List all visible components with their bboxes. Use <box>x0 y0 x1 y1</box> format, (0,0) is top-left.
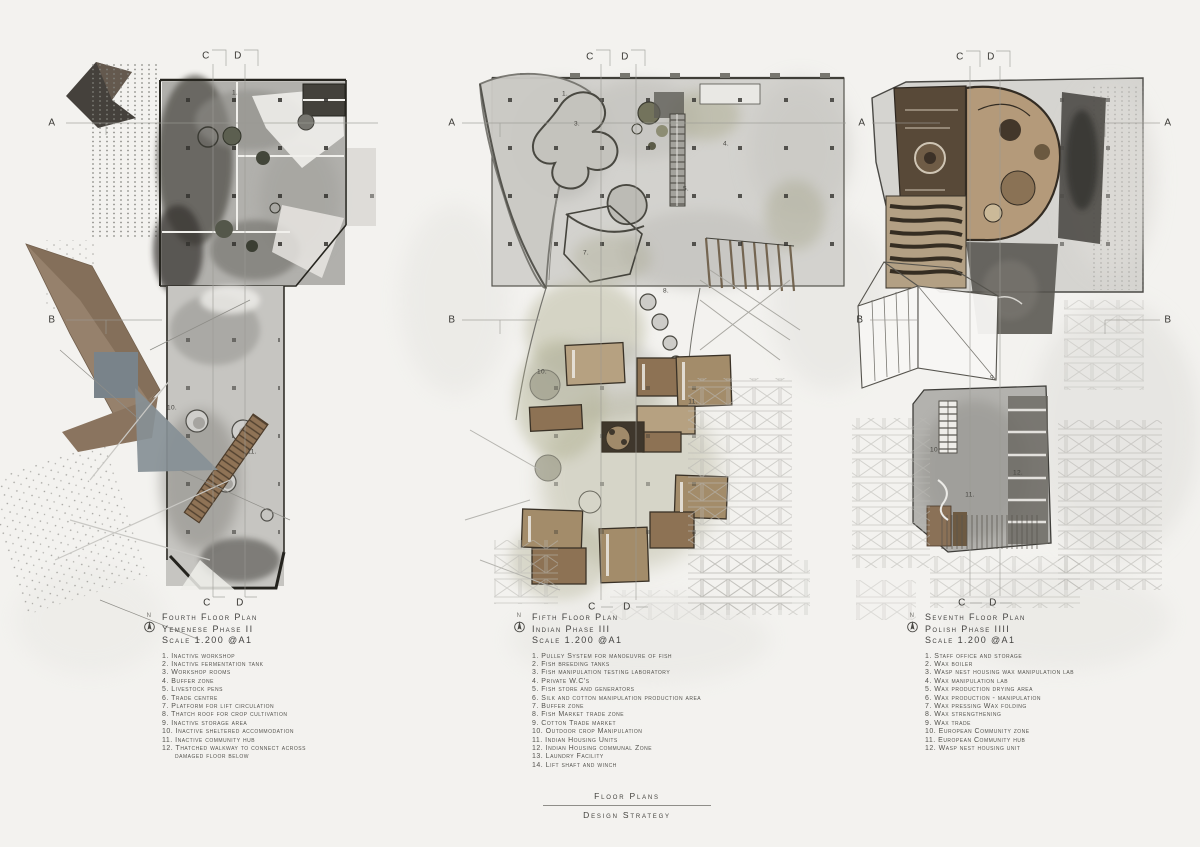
legend-scale: Scale 1.200 @A1 <box>532 635 752 647</box>
north-label: N <box>910 613 915 619</box>
floor-plan-seventh-drawing <box>852 78 1162 620</box>
legend-item: 9. Cotton Trade market <box>532 720 752 728</box>
sheet-title: Floor Plans <box>537 791 717 801</box>
legend-item: 11. Indian Housing Units <box>532 737 752 745</box>
legend-item: 10. Outdoor crop Manipulation <box>532 728 752 736</box>
legend-scale: Scale 1.200 @A1 <box>925 635 1135 647</box>
legend-item: 4. Buffer zone <box>162 678 342 686</box>
legend-phase: Polish Phase IIII <box>925 624 1135 636</box>
legend-item: 5. Livestock pens <box>162 686 342 694</box>
legend-scale: Scale 1.200 @A1 <box>162 635 342 647</box>
legend-item: 2. Inactive fermentation tank <box>162 661 342 669</box>
legend-item: 14. Lift shaft and winch <box>532 762 752 770</box>
legend-item: 5. Wax production drying area <box>925 686 1135 694</box>
legend-item: 12. Indian Housing communal Zone <box>532 745 752 753</box>
legend-item: 3. Workshop rooms <box>162 669 342 677</box>
legend-title: Seventh Floor Plan <box>925 612 1135 624</box>
title-divider <box>543 805 711 806</box>
legend-fourth-floor: N Fourth Floor Plan Yemenese Phase II Sc… <box>142 612 342 762</box>
legend-item: 6. Silk and cotton manipulation producti… <box>532 695 752 703</box>
legend-items: 1. Pulley System for manoeuvre of fish2.… <box>532 653 752 771</box>
legend-item: 6. Wax production - manipulation <box>925 695 1135 703</box>
legend-item: 1. Inactive workshop <box>162 653 342 661</box>
north-arrow-icon <box>906 620 919 634</box>
legend-item: 9. Inactive storage area <box>162 720 342 728</box>
compass: N <box>512 613 526 634</box>
north-arrow-icon <box>143 620 156 634</box>
legend-title: Fourth Floor Plan <box>162 612 342 624</box>
sheet-subtitle: Design Strategy <box>537 810 717 820</box>
legend-item: 3. Fish manipulation testing laboratory <box>532 669 752 677</box>
compass: N <box>142 613 156 634</box>
legend-item: 7. Buffer zone <box>532 703 752 711</box>
legend-item: 1. Staff office and storage <box>925 653 1135 661</box>
legend-phase: Yemenese Phase II <box>162 624 342 636</box>
legend-item: 12. Thatched walkway to connect across d… <box>162 745 342 762</box>
legend-item: 1. Pulley System for manoeuvre of fish <box>532 653 752 661</box>
north-arrow-icon <box>513 620 526 634</box>
north-label: N <box>147 613 152 619</box>
floor-plan-fourth-drawing <box>0 62 376 640</box>
legend-title: Fifth Floor Plan <box>532 612 752 624</box>
compass: N <box>905 613 919 634</box>
legend-item: 5. Fish store and generators <box>532 686 752 694</box>
legend-item: 12. Wasp nest housing unit <box>925 745 1135 753</box>
legend-item: 8. Fish Market trade zone <box>532 711 752 719</box>
legend-item: 6. Trade centre <box>162 695 342 703</box>
title-block: Floor Plans Design Strategy <box>537 791 717 820</box>
legend-item: 10. Inactive sheltered accommodation <box>162 728 342 736</box>
legend-seventh-floor: N Seventh Floor Plan Polish Phase IIII S… <box>905 612 1135 753</box>
legend-item: 4. Private W.C's <box>532 678 752 686</box>
drawing-sheet: AAAABBBBCDCDCDCDCDCD 1.10.11.1.3.4.5.7.8… <box>0 0 1200 847</box>
legend-item: 11. European Community hub <box>925 737 1135 745</box>
legend-phase: Indian Phase III <box>532 624 752 636</box>
legend-items: 1. Staff office and storage2. Wax boiler… <box>925 653 1135 754</box>
legend-item: 3. Wasp nest housing wax manipulation la… <box>925 669 1135 677</box>
legend-item: 9. Wax trade <box>925 720 1135 728</box>
legend-fifth-floor: N Fifth Floor Plan Indian Phase III Scal… <box>512 612 752 770</box>
legend-item: 4. Wax manipulation lab <box>925 678 1135 686</box>
legend-item: 7. Platform for lift circulation <box>162 703 342 711</box>
legend-item: 10. European Community zone <box>925 728 1135 736</box>
legend-item: 8. Thatch roof for crop cultivation <box>162 711 342 719</box>
legend-items: 1. Inactive workshop2. Inactive fermenta… <box>162 653 342 762</box>
legend-item: 8. Wax strengthening <box>925 711 1135 719</box>
legend-item: 13. Laundry Facility <box>532 753 752 761</box>
north-label: N <box>517 613 522 619</box>
legend-item: 2. Wax boiler <box>925 661 1135 669</box>
legend-item: 7. Wax pressing Wax folding <box>925 703 1135 711</box>
legend-item: 11. Inactive community hub <box>162 737 342 745</box>
legend-item: 2. Fish breeding tanks <box>532 661 752 669</box>
